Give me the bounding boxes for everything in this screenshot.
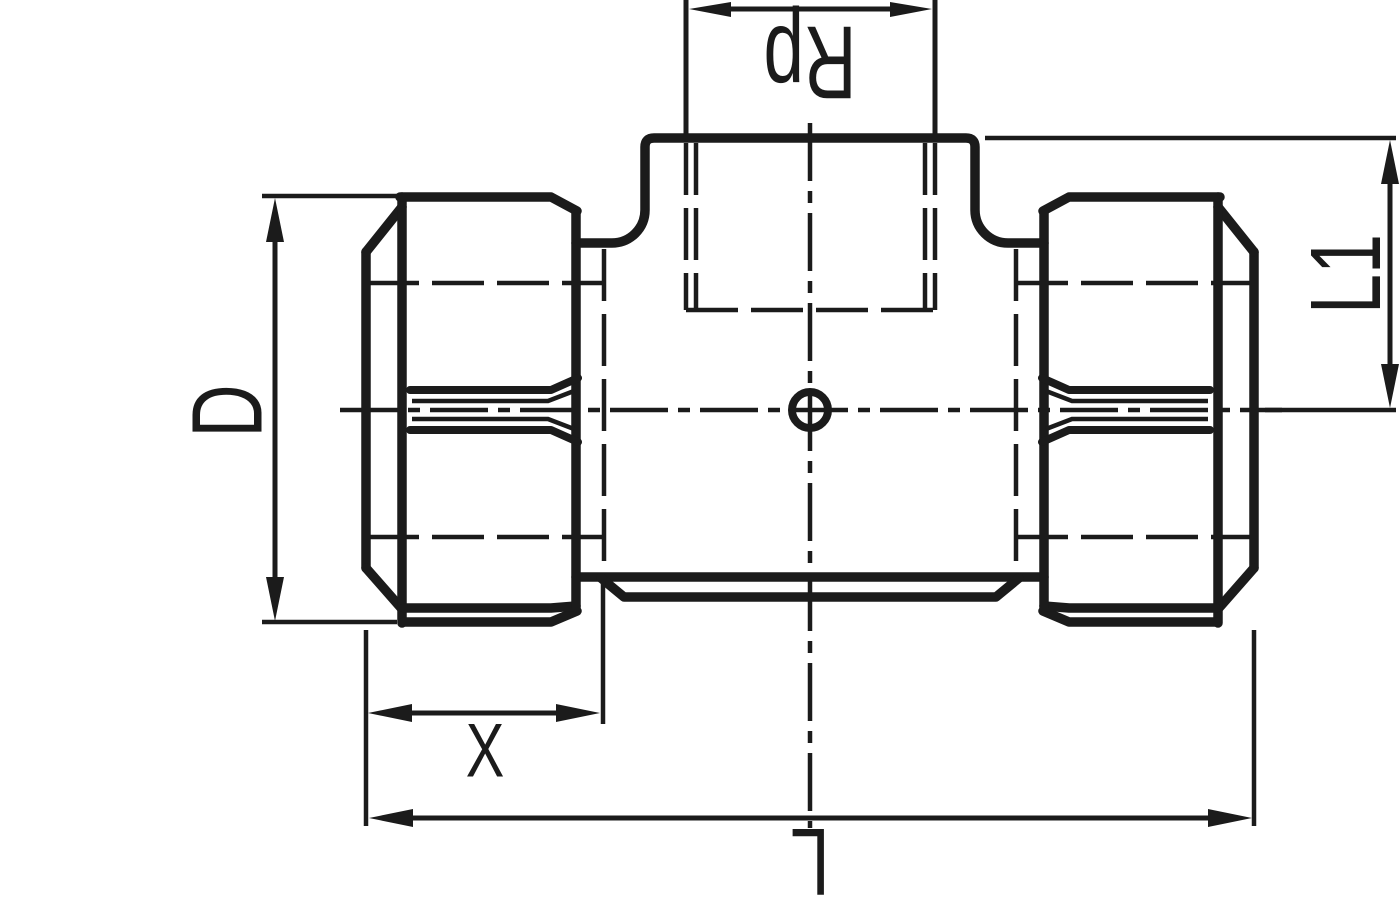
- tee-fitting-drawing: Rp D X L L1: [0, 0, 1400, 900]
- arrowhead-up: [266, 198, 284, 242]
- dim-label-d: D: [171, 384, 284, 437]
- arrowhead-right: [556, 704, 600, 722]
- technical-drawing-canvas: Rp D X L L1: [0, 0, 1400, 900]
- dim-label-x: X: [466, 709, 505, 793]
- arrowhead-right: [1208, 809, 1252, 827]
- arrowhead-up: [1381, 140, 1399, 184]
- dim-label-l: L: [790, 809, 830, 900]
- dim-label-l1: L1: [1290, 234, 1400, 314]
- arrowhead-down: [266, 577, 284, 621]
- arrowhead-right: [890, 2, 932, 17]
- arrowhead-left: [369, 809, 413, 827]
- arrowhead-down: [1381, 364, 1399, 408]
- dimension-rp: Rp: [686, 0, 935, 134]
- arrowhead-left: [368, 704, 412, 722]
- dim-label-rp: Rp: [763, 4, 856, 120]
- arrowhead-left: [689, 2, 731, 17]
